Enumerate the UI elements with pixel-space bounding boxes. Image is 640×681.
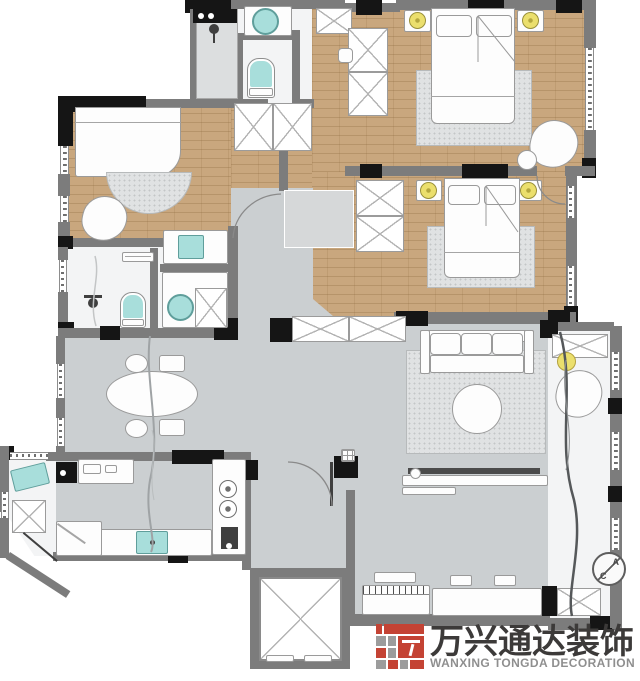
column bbox=[270, 318, 292, 342]
piano-keys bbox=[363, 586, 429, 595]
sheet-line bbox=[75, 122, 181, 123]
faucet-dot bbox=[150, 540, 155, 545]
window bbox=[567, 186, 575, 218]
wardrobe-cabinet bbox=[316, 8, 352, 34]
wall-segment bbox=[250, 568, 350, 577]
wall-segment bbox=[58, 247, 68, 260]
pillow bbox=[484, 185, 516, 205]
balcony-cabinet bbox=[12, 500, 46, 533]
side-table bbox=[557, 352, 576, 371]
dining-table bbox=[106, 371, 198, 417]
sofa-cushion bbox=[430, 333, 461, 355]
toilet-bowl bbox=[250, 61, 272, 87]
sofa-seat bbox=[430, 355, 524, 373]
tv-console bbox=[402, 475, 548, 486]
brand-name-english: WANXING TONGDA DECORATION bbox=[430, 656, 634, 670]
wardrobe-cabinet bbox=[234, 103, 273, 151]
window bbox=[611, 352, 620, 390]
window bbox=[585, 48, 594, 130]
wall-segment bbox=[250, 568, 259, 669]
window bbox=[59, 260, 67, 292]
lamp-icon bbox=[522, 12, 539, 29]
stove-burner bbox=[219, 500, 237, 518]
wall-segment bbox=[58, 174, 70, 196]
lamp-icon bbox=[409, 12, 426, 29]
pillow bbox=[476, 15, 512, 37]
speaker bbox=[410, 468, 421, 479]
bin-dot bbox=[226, 543, 232, 549]
storage-cabinet bbox=[557, 588, 601, 616]
sheet-line bbox=[444, 252, 520, 253]
wall-segment bbox=[56, 398, 65, 418]
pillow bbox=[448, 185, 480, 205]
tv bbox=[408, 468, 540, 474]
dining-chair bbox=[159, 355, 185, 372]
wall-segment bbox=[228, 226, 238, 330]
dining-chair bbox=[159, 419, 185, 436]
wall-segment bbox=[279, 147, 288, 191]
storage-cabinet bbox=[292, 316, 349, 342]
wall-segment bbox=[0, 518, 9, 558]
wall-segment bbox=[56, 336, 65, 364]
wall-segment bbox=[565, 166, 595, 176]
window bbox=[10, 452, 48, 460]
column bbox=[360, 164, 382, 178]
lamp-icon bbox=[520, 182, 537, 199]
column bbox=[462, 164, 508, 178]
wardrobe-cabinet bbox=[273, 103, 312, 151]
towel-rack-line bbox=[125, 256, 151, 257]
entry-door-leaf bbox=[330, 462, 333, 506]
toilet-bowl bbox=[123, 295, 143, 318]
desk bbox=[284, 190, 354, 248]
left-bedroom-bed bbox=[75, 107, 181, 177]
storage-cabinet bbox=[349, 316, 406, 342]
elevator-door bbox=[266, 655, 294, 662]
shower-bar bbox=[84, 295, 102, 298]
window bbox=[60, 196, 69, 222]
counter-item bbox=[83, 464, 101, 474]
column bbox=[608, 398, 622, 414]
window bbox=[60, 146, 69, 174]
laundry-cabinet bbox=[195, 288, 227, 328]
sofa-cushion bbox=[492, 333, 523, 355]
faucet-knob bbox=[198, 13, 204, 19]
window bbox=[57, 364, 65, 398]
wardrobe-cabinet bbox=[348, 72, 388, 116]
window bbox=[567, 266, 575, 306]
ac-letter-c: C bbox=[600, 571, 607, 581]
logo-mark bbox=[376, 622, 424, 670]
wall-segment bbox=[292, 30, 300, 108]
shower-head-icon bbox=[88, 298, 98, 308]
column bbox=[556, 0, 582, 13]
stool bbox=[450, 575, 472, 586]
intercom-panel bbox=[341, 449, 355, 462]
sheet-line bbox=[431, 96, 515, 97]
floor-plan: A C 万兴通达装饰 WANXIN bbox=[0, 0, 640, 681]
dining-chair bbox=[125, 419, 148, 438]
piano-bench bbox=[374, 572, 416, 583]
wall-segment bbox=[58, 238, 166, 247]
window bbox=[1, 492, 9, 518]
window bbox=[611, 518, 620, 550]
sofa-cushion bbox=[461, 333, 492, 355]
window bbox=[611, 432, 620, 470]
wall-segment bbox=[250, 660, 350, 669]
dining-chair bbox=[125, 354, 148, 373]
wall-segment bbox=[160, 264, 230, 272]
pillow bbox=[436, 15, 472, 37]
elevator-shaft bbox=[259, 577, 342, 661]
window bbox=[57, 418, 65, 446]
side-stool bbox=[517, 150, 537, 170]
company-logo: 万兴通达装饰 WANXING TONGDA DECORATION bbox=[372, 616, 634, 676]
washing-machine-top bbox=[167, 294, 194, 321]
wardrobe-cabinet bbox=[348, 28, 388, 72]
column bbox=[58, 96, 73, 146]
sideboard bbox=[432, 588, 542, 616]
column bbox=[542, 586, 557, 616]
toilet-tank bbox=[249, 88, 273, 96]
wall-segment bbox=[584, 0, 596, 48]
wardrobe-cabinet bbox=[356, 216, 404, 252]
ac-unit-icon: A C bbox=[592, 552, 626, 586]
elevator-door bbox=[304, 655, 332, 662]
round-sink bbox=[252, 8, 279, 35]
towel-rack bbox=[122, 252, 154, 262]
low-shelf bbox=[402, 487, 456, 495]
wall-segment bbox=[58, 328, 238, 338]
sofa-arm bbox=[420, 330, 430, 374]
stove-burner bbox=[219, 480, 237, 498]
shower-stem bbox=[213, 33, 215, 43]
toilet-tank bbox=[122, 319, 144, 326]
stool bbox=[338, 48, 353, 63]
ac-letter-a: A bbox=[613, 557, 620, 567]
column bbox=[356, 0, 382, 15]
coffee-table bbox=[452, 384, 502, 434]
column bbox=[100, 326, 120, 340]
faucet-knob bbox=[208, 13, 214, 19]
wardrobe-cabinet bbox=[356, 180, 404, 216]
square-sink bbox=[178, 235, 204, 259]
sofa-arm bbox=[524, 330, 534, 374]
oven-knob bbox=[60, 470, 66, 476]
lamp-icon bbox=[420, 182, 437, 199]
column bbox=[608, 486, 622, 502]
counter-item bbox=[105, 465, 117, 473]
stool bbox=[494, 575, 516, 586]
